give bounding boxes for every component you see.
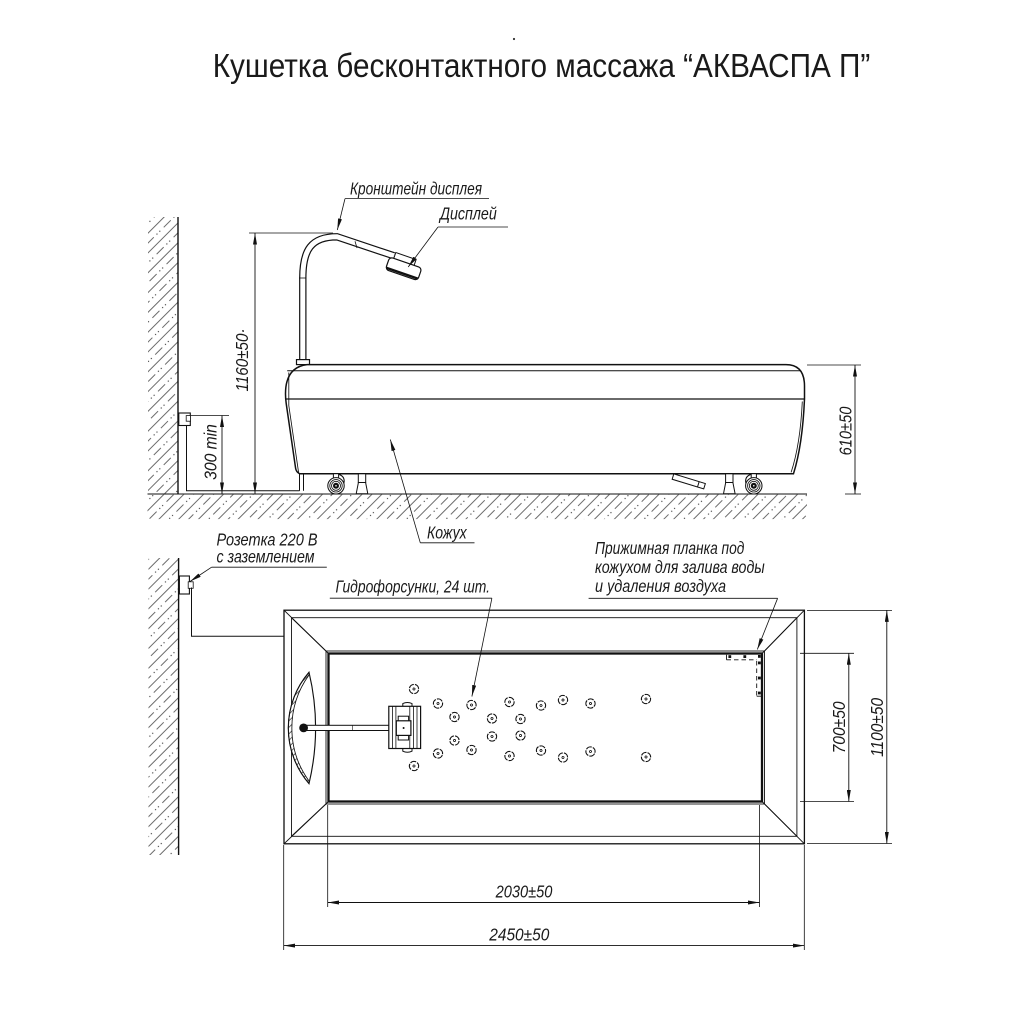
svg-text:300 min: 300 min: [200, 424, 220, 480]
svg-text:2030±50: 2030±50: [495, 882, 553, 902]
svg-text:1100±50: 1100±50: [867, 697, 887, 757]
svg-text:Кронштейн дисплея: Кронштейн дисплея: [350, 180, 482, 199]
svg-text:Гидрофорсунки, 24 шт.: Гидрофорсунки, 24 шт.: [336, 578, 491, 597]
svg-text:Кожух: Кожух: [427, 523, 468, 543]
svg-text:610±50: 610±50: [836, 407, 856, 456]
svg-text:2450±50: 2450±50: [488, 924, 550, 944]
svg-text:с заземлением: с заземлением: [217, 548, 315, 567]
svg-text:700±50: 700±50: [829, 701, 849, 754]
svg-text:Розетка 220 В: Розетка 220 В: [217, 530, 318, 550]
svg-text:1160±50·: 1160±50·: [232, 328, 253, 391]
svg-text:Кушетка бесконтактного массажа: Кушетка бесконтактного массажа “АКВАСПА …: [213, 48, 871, 85]
svg-text:и удаления воздуха: и удаления воздуха: [595, 577, 726, 597]
svg-text:Дисплей: Дисплей: [438, 204, 496, 224]
svg-text:кожухом для залива воды: кожухом для залива воды: [595, 559, 765, 578]
svg-text:Прижимная планка под: Прижимная планка под: [595, 539, 745, 558]
